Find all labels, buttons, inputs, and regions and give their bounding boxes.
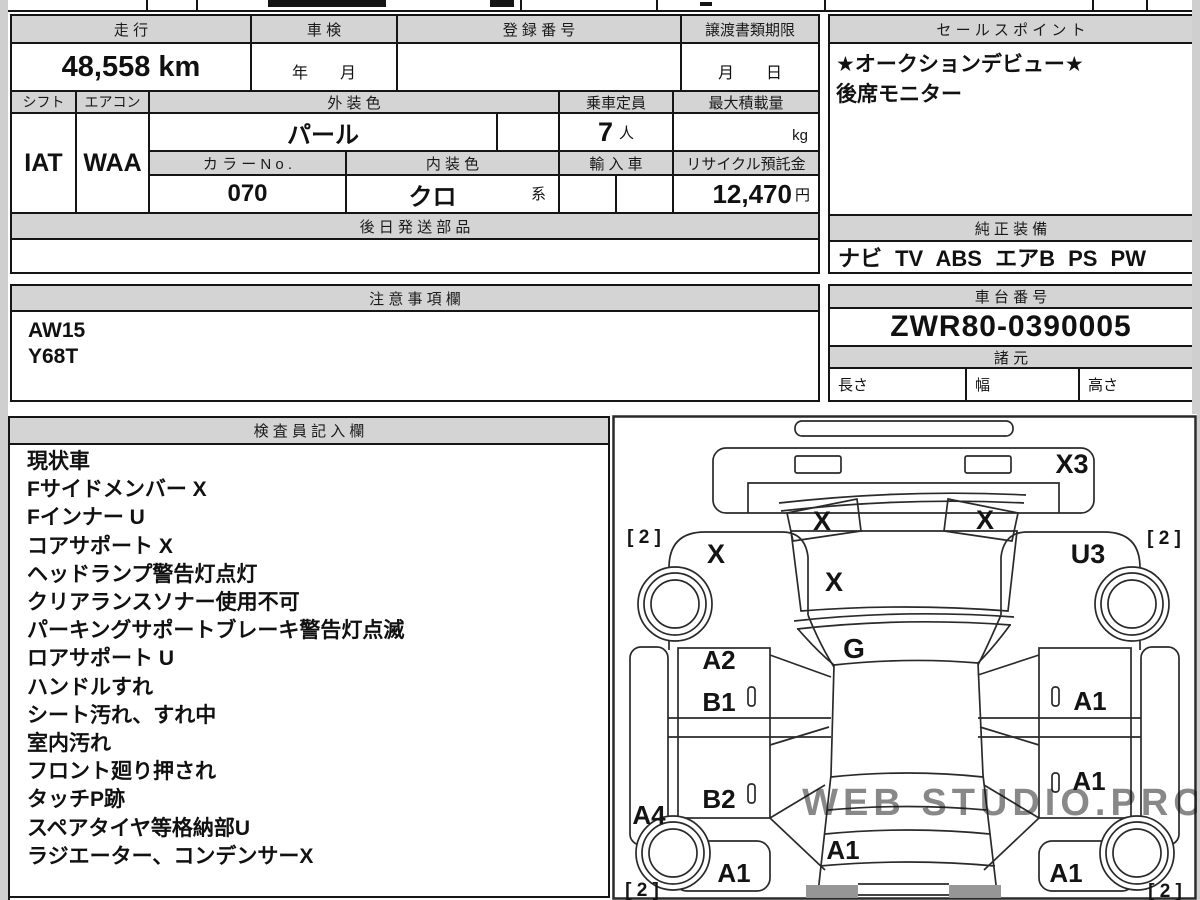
cropped-text-remnant xyxy=(490,0,514,7)
shift-value: IAT xyxy=(12,114,77,214)
inspector-content: 現状車 Fサイドメンバー X Fインナー U コアサポート X ヘッドランプ警告… xyxy=(10,445,610,898)
tire-front-left xyxy=(638,567,712,641)
damage-label-windshield: G xyxy=(843,633,865,664)
later-parts-header: 後 日 発 送 部 品 xyxy=(12,214,820,240)
import-car-cell-1 xyxy=(560,176,617,214)
inspector-line: 現状車 xyxy=(27,448,608,476)
quarter-line-right xyxy=(984,818,1039,870)
inspector-header: 検 査 員 記 入 欄 xyxy=(10,418,610,445)
color-no-header: カ ラ ー N o . xyxy=(150,152,347,176)
tread-depth-rear-right: [ 2 ] xyxy=(1148,881,1182,900)
notes-content: AW15 Y68T xyxy=(12,312,820,402)
interior-color-suffix: 系 xyxy=(531,183,546,204)
front-bumper-face xyxy=(713,448,1094,513)
tire-rear-right xyxy=(1100,816,1174,890)
recycle-deposit-number: 12,470 xyxy=(712,179,792,210)
chassis-header: 車 台 番 号 xyxy=(830,286,1194,309)
rear-bumper-lines xyxy=(858,884,949,895)
roof-edge-right xyxy=(978,663,997,893)
door-handle xyxy=(748,784,755,803)
cropped-text-remnant xyxy=(268,0,386,7)
spec-width-label: 幅 xyxy=(967,369,1080,402)
exterior-color-header: 外 装 色 xyxy=(150,92,560,114)
watermark: WEB STUDIO.PRO xyxy=(802,782,1197,824)
damage-label-quarter-left: A1 xyxy=(717,858,750,888)
transfer-deadline-header: 譲渡書類期限 xyxy=(682,16,820,44)
mileage-value: 48,558 km xyxy=(12,44,252,92)
sales-point-content: ★オークションデビュー★ 後席モニター xyxy=(830,44,1194,216)
interior-color-header: 内 装 色 xyxy=(347,152,560,176)
door-handle xyxy=(1052,687,1059,706)
cowl-line xyxy=(794,614,1014,621)
specs-header: 諸 元 xyxy=(830,347,1194,369)
capacity-number: 7 xyxy=(598,117,613,148)
tread-depth-front-left: [ 2 ] xyxy=(627,527,661,548)
damage-label-door-fl: B1 xyxy=(702,687,735,717)
damage-label-door-fr: A1 xyxy=(1073,686,1106,716)
tire-rings xyxy=(642,573,1168,884)
registration-value xyxy=(398,44,682,92)
tread-depth-rear-left: [ 2 ] xyxy=(625,880,659,900)
inspector-line: スペアタイヤ等格納部U xyxy=(27,815,608,843)
car-diagram: WEB STUDIO.PRO X3 X X X U3 X G A2 B1 B2 … xyxy=(612,415,1197,900)
inspector-line: ハンドルすれ xyxy=(27,674,608,702)
import-car-header: 輸 入 車 xyxy=(560,152,674,176)
capacity-unit: 人 xyxy=(619,122,634,143)
front-bumper-strip xyxy=(795,421,1013,436)
tread-depth-front-right: [ 2 ] xyxy=(1147,528,1181,549)
damage-label-quarter-right: A1 xyxy=(1049,858,1082,888)
tail-lights xyxy=(806,885,1001,898)
damage-label-fender-left: X xyxy=(707,539,725,569)
damage-label-front-bumper: X3 xyxy=(1055,449,1088,479)
inspector-line: Fインナー U xyxy=(27,504,608,532)
damage-label-headlight-left: X xyxy=(813,506,831,536)
inspector-line: フロント廻り押され xyxy=(27,758,608,786)
inspection-value: 年 月 xyxy=(252,44,398,92)
cowl-line xyxy=(797,622,1011,629)
damage-label-rocker-left: A4 xyxy=(632,800,666,830)
max-load-header: 最大積載量 xyxy=(674,92,820,114)
damage-label-tailgate: A1 xyxy=(826,835,859,865)
remnant-border xyxy=(146,0,148,10)
rear-window-base xyxy=(825,830,990,834)
inspector-line: 室内汚れ xyxy=(27,730,608,758)
interior-color-value: クロ 系 xyxy=(347,176,560,214)
page-margin-right-upper xyxy=(1192,0,1197,414)
capacity-header: 乗車定員 xyxy=(560,92,674,114)
sales-point-header: セ ー ル ス ポ イ ン ト xyxy=(830,16,1194,44)
exterior-color-sub-cell xyxy=(498,114,560,152)
damage-label-hood: X xyxy=(825,567,843,597)
remnant-border xyxy=(196,0,198,10)
spec-length-label: 長さ xyxy=(830,369,967,402)
damage-label-fender-right: U3 xyxy=(1071,539,1106,569)
later-parts-value xyxy=(12,240,820,274)
chassis-value: ZWR80-0390005 xyxy=(830,309,1194,347)
cropped-text-remnant xyxy=(700,2,712,6)
inspector-line: クリアランスソナー使用不可 xyxy=(27,589,608,617)
remnant-border xyxy=(1146,0,1148,10)
capacity-value: 7 人 xyxy=(560,114,674,152)
tire-front-right xyxy=(1095,567,1169,641)
remnant-border xyxy=(520,0,522,10)
color-no-value: 070 xyxy=(150,176,347,214)
inspector-line: パーキングサポートブレーキ警告灯点滅 xyxy=(27,617,608,645)
tail-light-right xyxy=(949,885,1001,898)
inspector-line: ラジエーター、コンデンサーX xyxy=(27,843,608,871)
remnant-border xyxy=(656,0,658,10)
damage-label-door-fl-upper: A2 xyxy=(702,645,735,675)
spec-height-label: 高さ xyxy=(1080,369,1194,402)
damage-label-door-sr: A1 xyxy=(1072,766,1105,796)
inspector-line: ロアサポート U xyxy=(27,645,608,673)
remnant-border xyxy=(824,0,826,10)
cropped-row-remnant xyxy=(8,0,1197,12)
registration-header: 登 録 番 号 xyxy=(398,16,682,44)
inspector-line: Fサイドメンバー X xyxy=(27,476,608,504)
tail-light-left xyxy=(806,885,858,898)
inspector-line: ヘッドランプ警告灯点灯 xyxy=(27,561,608,589)
quarter-line-left xyxy=(770,818,825,870)
recycle-deposit-header: リサイクル預託金 xyxy=(674,152,820,176)
damage-label-door-sl: B2 xyxy=(702,784,735,814)
note-line: Y68T xyxy=(28,344,818,370)
aircon-value: WAA xyxy=(77,114,150,214)
inspection-header: 車 検 xyxy=(252,16,398,44)
sales-point-line: ★オークションデビュー★ xyxy=(830,44,1192,80)
front-plate-right xyxy=(965,456,1011,473)
diagram-border xyxy=(614,417,1196,899)
genuine-equipment-value: ナビ TV ABS エアB PS PW xyxy=(830,242,1194,274)
front-plate-left xyxy=(795,456,841,473)
page-margin-left xyxy=(0,0,8,900)
damage-label-headlight-right: X xyxy=(976,505,994,535)
notes-header: 注 意 事 項 欄 xyxy=(12,286,820,312)
chassis-panel: 車 台 番 号 ZWR80-0390005 諸 元 長さ 幅 高さ xyxy=(828,284,1194,402)
notes-panel: 注 意 事 項 欄 AW15 Y68T xyxy=(10,284,820,402)
inspector-line: コアサポート X xyxy=(27,533,608,561)
inspector-line: タッチP跡 xyxy=(27,786,608,814)
aircon-header: エアコン xyxy=(77,92,150,114)
bumper-recess xyxy=(748,483,1059,513)
interior-color-name: クロ xyxy=(347,176,518,212)
shift-header: シフト xyxy=(12,92,77,114)
mileage-header: 走 行 xyxy=(12,16,252,44)
vehicle-info-table: 走 行 車 検 登 録 番 号 譲渡書類期限 48,558 km 年 月 月 日… xyxy=(10,14,820,274)
sales-point-panel: セ ー ル ス ポ イ ン ト ★オークションデビュー★ 後席モニター 純 正 … xyxy=(828,14,1194,274)
sales-point-line: 後席モニター xyxy=(830,80,1192,110)
inspector-line: シート汚れ、すれ中 xyxy=(27,702,608,730)
recycle-deposit-unit: 円 xyxy=(795,184,810,205)
body-line-left xyxy=(808,615,834,667)
roof-rear-line xyxy=(831,773,983,777)
door-handle xyxy=(748,687,755,706)
transfer-deadline-value: 月 日 xyxy=(682,44,820,92)
max-load-value: kg xyxy=(674,114,820,152)
recycle-deposit-value: 12,470 円 xyxy=(674,176,820,214)
import-car-cell-2 xyxy=(617,176,674,214)
note-line: AW15 xyxy=(28,318,818,344)
auction-sheet: 走 行 車 検 登 録 番 号 譲渡書類期限 48,558 km 年 月 月 日… xyxy=(0,0,1200,900)
remnant-border xyxy=(1092,0,1094,10)
exterior-color-value: パール xyxy=(150,114,498,152)
genuine-equipment-header: 純 正 装 備 xyxy=(830,216,1194,242)
inspector-panel: 検 査 員 記 入 欄 現状車 Fサイドメンバー X Fインナー U コアサポー… xyxy=(8,416,610,900)
